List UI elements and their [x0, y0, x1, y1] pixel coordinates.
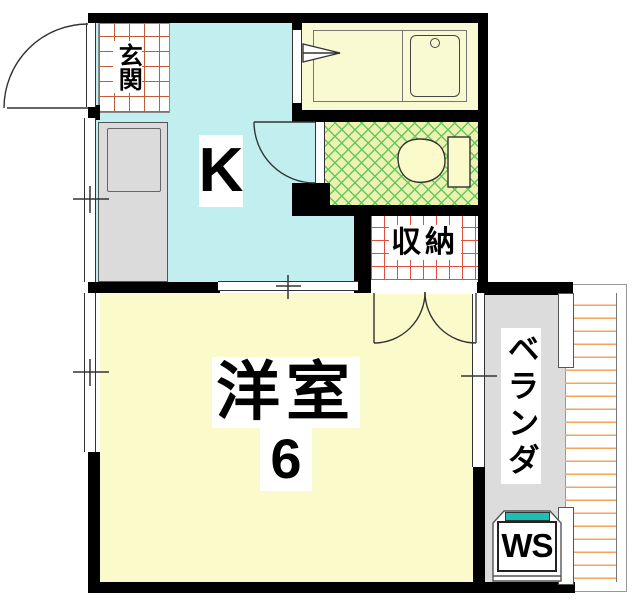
wall-bath-bottom: [292, 110, 483, 122]
kitchen-window: [84, 118, 96, 282]
washer-pan: WS: [497, 521, 557, 572]
kitchen-sink: [107, 128, 161, 192]
toilet-door-frame: [315, 122, 325, 183]
entrance-door-swing-icon: [4, 24, 88, 108]
closet-label: 収納: [380, 227, 470, 259]
wall-room-right-lower: [473, 467, 485, 593]
main-room-size: 6: [260, 428, 311, 491]
wall-left-lower: [88, 452, 100, 593]
entrance-door-frame: [86, 23, 96, 107]
bathroom-divider: [402, 30, 403, 102]
kitchen-label: K: [199, 135, 243, 207]
kitchen-sliding-door: [218, 281, 358, 291]
closet-opening: [371, 280, 477, 294]
balcony-sliding-door: [472, 293, 485, 467]
balcony-partition-panel-top: [558, 293, 574, 368]
main-room-name: 洋室: [212, 357, 360, 428]
balcony-label: ベランダ: [501, 328, 541, 484]
main-room-label: 洋室 6: [211, 357, 361, 491]
wall-right-upper: [478, 13, 488, 295]
entrance-label: 玄関: [113, 41, 142, 93]
bathtub-faucet-icon: [430, 38, 440, 48]
toilet-floor: [325, 122, 478, 205]
washer-accent-bar: [505, 512, 550, 521]
bathroom-door-opening: [292, 30, 302, 103]
wall-top: [88, 13, 488, 23]
main-room-window-left: [84, 293, 96, 452]
wall-bath-left-top: [292, 13, 302, 30]
floorplan: WS: [0, 0, 640, 607]
washer-space-label: WS: [501, 529, 552, 564]
wall-partition-left: [88, 282, 220, 293]
wall-toilet-bottom: [315, 205, 478, 216]
balcony-partition-panel-bottom: [558, 507, 574, 585]
wall-bottom: [88, 582, 575, 593]
balcony-railing-inner-line: [616, 293, 617, 582]
